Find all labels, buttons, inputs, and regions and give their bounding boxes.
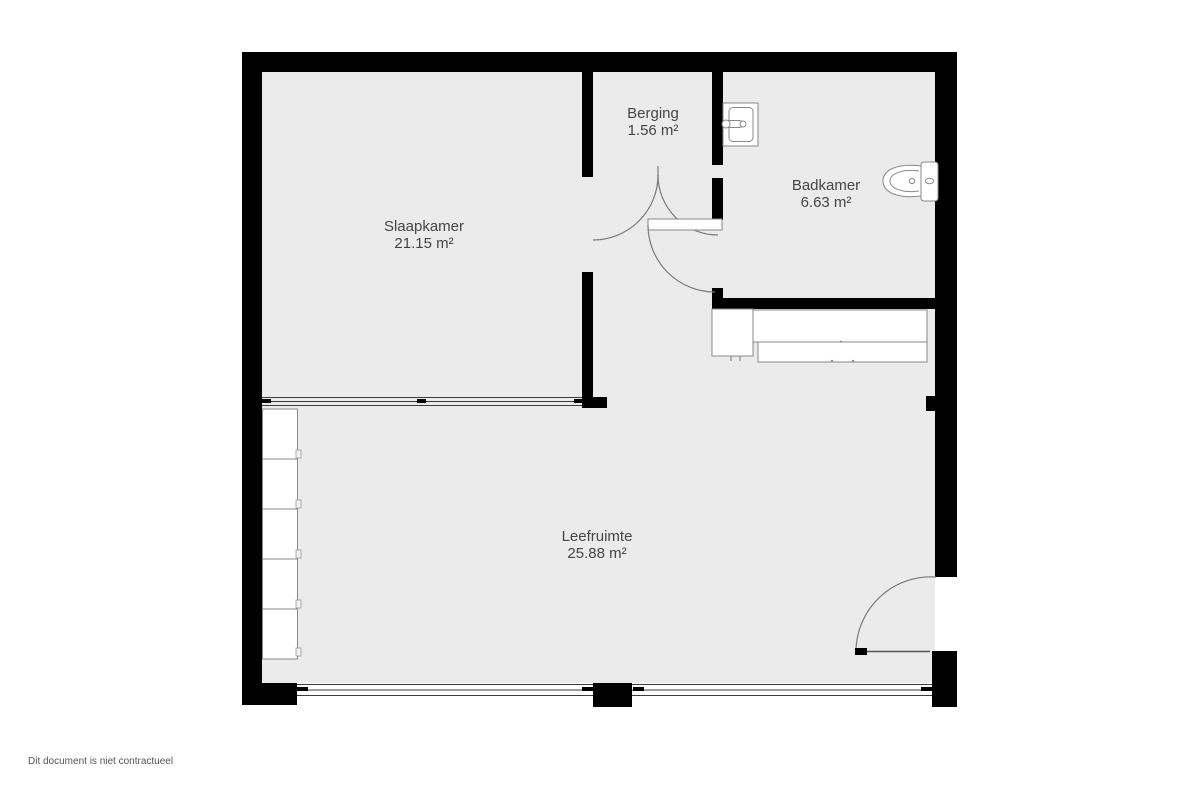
wall-badkamer-left-lower bbox=[712, 178, 723, 220]
wall-badkamer-bottom bbox=[712, 298, 935, 309]
kitchen-counter-upper bbox=[753, 310, 927, 342]
sink-faucet-knob bbox=[722, 120, 730, 128]
closet-cell bbox=[263, 609, 298, 659]
kitchen-counter bbox=[712, 309, 927, 362]
closet-hinge-tick bbox=[296, 550, 301, 558]
toilet-drain bbox=[909, 178, 914, 183]
closet-hinge-tick bbox=[296, 600, 301, 608]
partition-mid-tick bbox=[417, 399, 426, 403]
wall-right-upper bbox=[935, 52, 957, 577]
room-area-berging: 1.56 m² bbox=[628, 122, 679, 139]
toilet-bowl bbox=[883, 165, 921, 196]
kitchen-mark bbox=[831, 360, 833, 362]
room-area-badkamer: 6.63 m² bbox=[801, 194, 852, 211]
wall-divider-stub bbox=[593, 397, 607, 408]
sink-faucet-knob bbox=[740, 121, 746, 127]
room-label-berging: Berging bbox=[627, 105, 679, 122]
closet-hinge-tick bbox=[296, 648, 301, 656]
sink-icon bbox=[722, 103, 758, 146]
wall-slaapkamer-divider-upper bbox=[582, 72, 593, 177]
wall-bottom-pier bbox=[593, 683, 632, 707]
kitchen-counter-lower bbox=[758, 342, 927, 362]
entrance-door-tick bbox=[855, 648, 867, 655]
room-label-leefruimte: Leefruimte bbox=[562, 528, 633, 545]
closet-hinge-tick bbox=[296, 500, 301, 508]
floorplan-page: Slaapkamer 21.15 m² Berging 1.56 m² Badk… bbox=[0, 0, 1200, 800]
wall-slaapkamer-divider-lower bbox=[582, 272, 593, 408]
window-end-tick bbox=[921, 687, 932, 691]
floor-area bbox=[252, 62, 938, 684]
door-leaf-badkamer bbox=[648, 219, 722, 230]
toilet-flush-button bbox=[926, 178, 934, 184]
entrance-opening bbox=[935, 577, 957, 651]
wall-right-lower bbox=[932, 651, 957, 707]
kitchen-mark bbox=[852, 360, 854, 362]
wall-right-nib bbox=[926, 396, 935, 411]
wall-bottom-left-stub bbox=[242, 683, 297, 705]
room-area-slaapkamer: 21.15 m² bbox=[394, 235, 453, 252]
partition-end-tick bbox=[262, 399, 271, 403]
kitchen-block bbox=[712, 309, 753, 356]
wall-badkamer-left-upper bbox=[712, 72, 723, 165]
closet-cell bbox=[263, 509, 298, 559]
window-end-tick bbox=[633, 687, 644, 691]
kitchen-mark bbox=[840, 341, 842, 343]
wall-top bbox=[242, 52, 957, 72]
closet-cell bbox=[263, 409, 298, 459]
floorplan-drawing: Slaapkamer 21.15 m² Berging 1.56 m² Badk… bbox=[0, 0, 1200, 800]
room-label-badkamer: Badkamer bbox=[792, 177, 860, 194]
wall-left bbox=[242, 52, 262, 705]
closet-hinge-tick bbox=[296, 450, 301, 458]
window-end-tick bbox=[297, 687, 308, 691]
disclaimer-text: Dit document is niet contractueel bbox=[28, 756, 173, 767]
room-area-leefruimte: 25.88 m² bbox=[567, 545, 626, 562]
window-end-tick bbox=[582, 687, 593, 691]
closet-cell bbox=[263, 559, 298, 609]
room-label-slaapkamer: Slaapkamer bbox=[384, 218, 464, 235]
partition-end-tick bbox=[574, 399, 583, 403]
closet-unit bbox=[263, 409, 302, 659]
closet-cell bbox=[263, 459, 298, 509]
